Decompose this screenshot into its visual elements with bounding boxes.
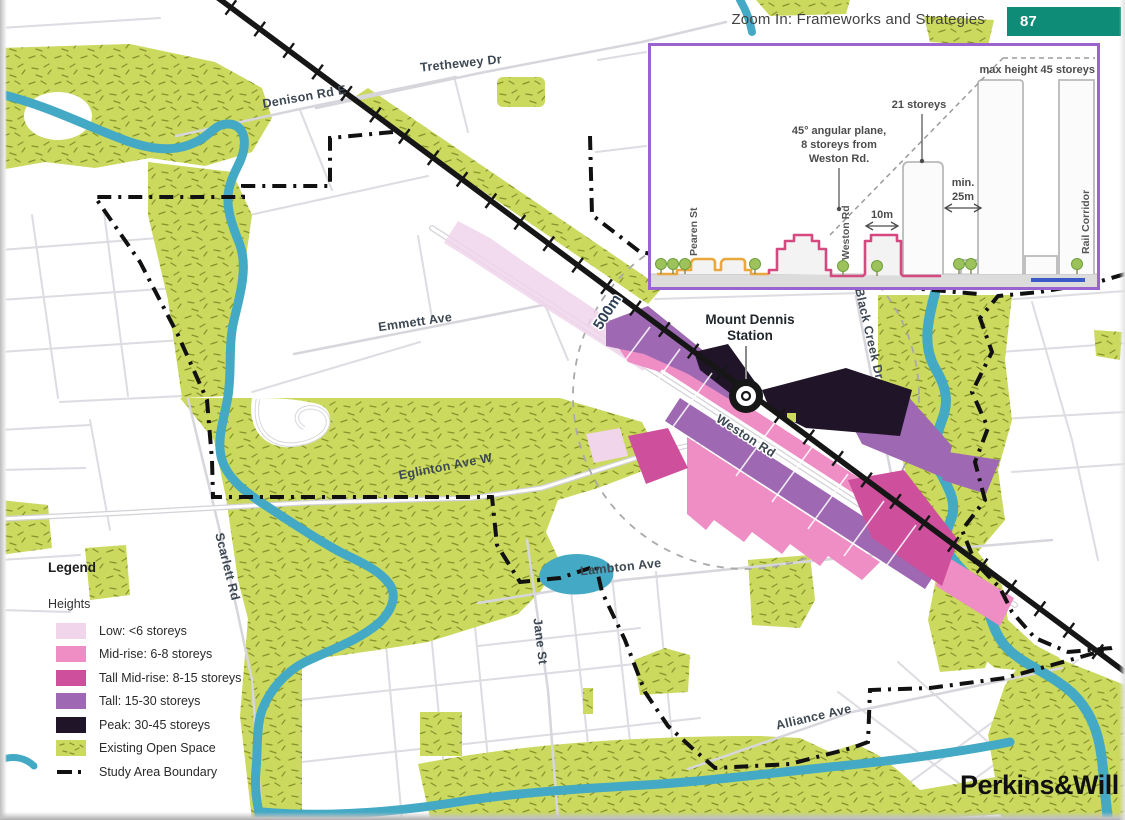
- inset-label-weston: Weston Rd: [840, 205, 852, 260]
- legend-item-tall: Tall: 15-30 storeys: [48, 690, 263, 714]
- legend-swatch-midrise: [56, 646, 86, 662]
- station-label: Mount Dennis: [705, 312, 794, 327]
- inset-label-pearen: Pearen St: [688, 207, 700, 256]
- svg-text:8 storeys from: 8 storeys from: [801, 139, 877, 151]
- legend-item-midrise: Mid-rise: 6-8 storeys: [48, 643, 263, 667]
- map-legend: Legend Heights Low: <6 storeys Mid-rise:…: [48, 560, 263, 784]
- legend-item-tall-midrise: Tall Mid-rise: 8-15 storeys: [48, 666, 263, 690]
- svg-text:Weston Rd.: Weston Rd.: [809, 153, 869, 165]
- perkins-will-logo: Perkins&Will: [960, 770, 1119, 801]
- legend-symbol-boundary: [56, 764, 86, 780]
- min-25m-arrow: [945, 204, 981, 212]
- legend-swatch-low: [56, 623, 86, 639]
- page-number-badge: 87: [1007, 7, 1121, 36]
- page: Trethewey Dr Denison Rd E Emmett Ave Egl…: [0, 0, 1125, 820]
- 10m-annotation: 10m: [871, 209, 893, 221]
- legend-swatch-open-space: [56, 740, 86, 756]
- station-label: Station: [727, 328, 773, 343]
- inset-label-rail-corridor: Rail Corridor: [1080, 190, 1092, 254]
- min-25m-annotation: min.: [952, 177, 975, 189]
- ground: [651, 274, 1097, 287]
- page-number: 87: [1020, 13, 1037, 30]
- open-space-texture: [56, 740, 86, 756]
- page-header-title: Zoom In: Frameworks and Strategies: [731, 11, 985, 28]
- legend-item-open-space: Existing Open Space: [48, 737, 263, 761]
- 21-storeys-annotation: 21 storeys: [892, 99, 946, 111]
- legend-item-low: Low: <6 storeys: [48, 619, 263, 643]
- legend-swatch-tall-midrise: [56, 670, 86, 686]
- page-edge-bottom: [0, 812, 1125, 820]
- page-edge-right: [1119, 0, 1125, 820]
- svg-text:25m: 25m: [952, 191, 974, 203]
- inset-section-diagram: max height 45 storeys 21 storeys 45° ang…: [648, 43, 1100, 290]
- legend-item-boundary: Study Area Boundary: [48, 760, 263, 784]
- legend-swatch-peak: [56, 717, 86, 733]
- angular-plane-annotation: 45° angular plane,: [792, 125, 886, 137]
- max-height-annotation: max height 45 storeys: [979, 64, 1095, 76]
- 10m-arrow: [866, 222, 898, 230]
- legend-subtitle: Heights: [48, 597, 263, 611]
- legend-item-peak: Peak: 30-45 storeys: [48, 713, 263, 737]
- page-edge-left: [0, 0, 7, 820]
- legend-swatch-tall: [56, 693, 86, 709]
- legend-title: Legend: [48, 560, 263, 575]
